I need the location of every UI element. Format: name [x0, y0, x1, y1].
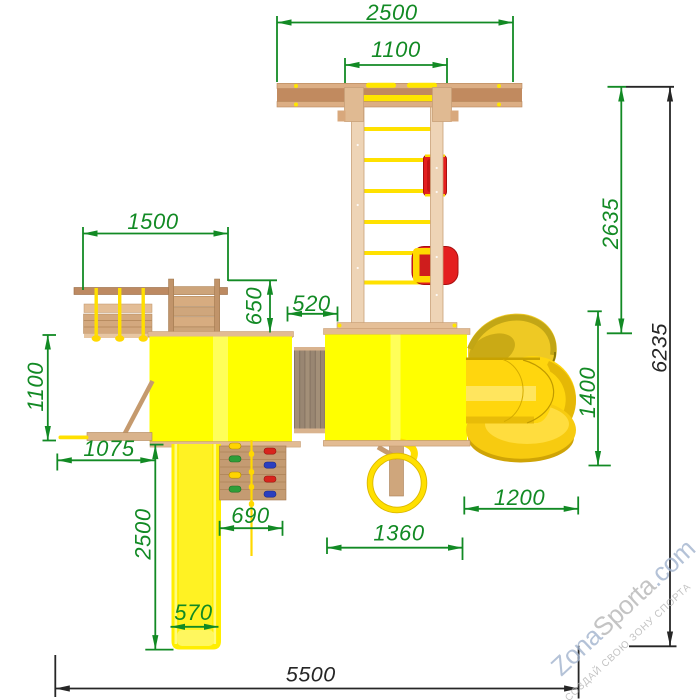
svg-text:2635: 2635	[598, 198, 623, 251]
svg-text:1400: 1400	[575, 367, 600, 419]
svg-text:2500: 2500	[365, 0, 418, 25]
svg-text:2500: 2500	[130, 508, 155, 561]
svg-text:1200: 1200	[494, 485, 546, 510]
svg-text:1360: 1360	[373, 520, 425, 545]
svg-text:1075: 1075	[83, 436, 135, 461]
svg-text:1100: 1100	[23, 362, 48, 412]
svg-text:570: 570	[174, 600, 213, 625]
svg-text:5500: 5500	[286, 663, 336, 687]
svg-text:690: 690	[231, 503, 270, 528]
svg-text:6235: 6235	[648, 323, 672, 373]
svg-text:520: 520	[292, 291, 331, 316]
svg-text:650: 650	[242, 287, 267, 326]
svg-text:1500: 1500	[127, 209, 179, 234]
svg-text:1100: 1100	[371, 37, 421, 62]
